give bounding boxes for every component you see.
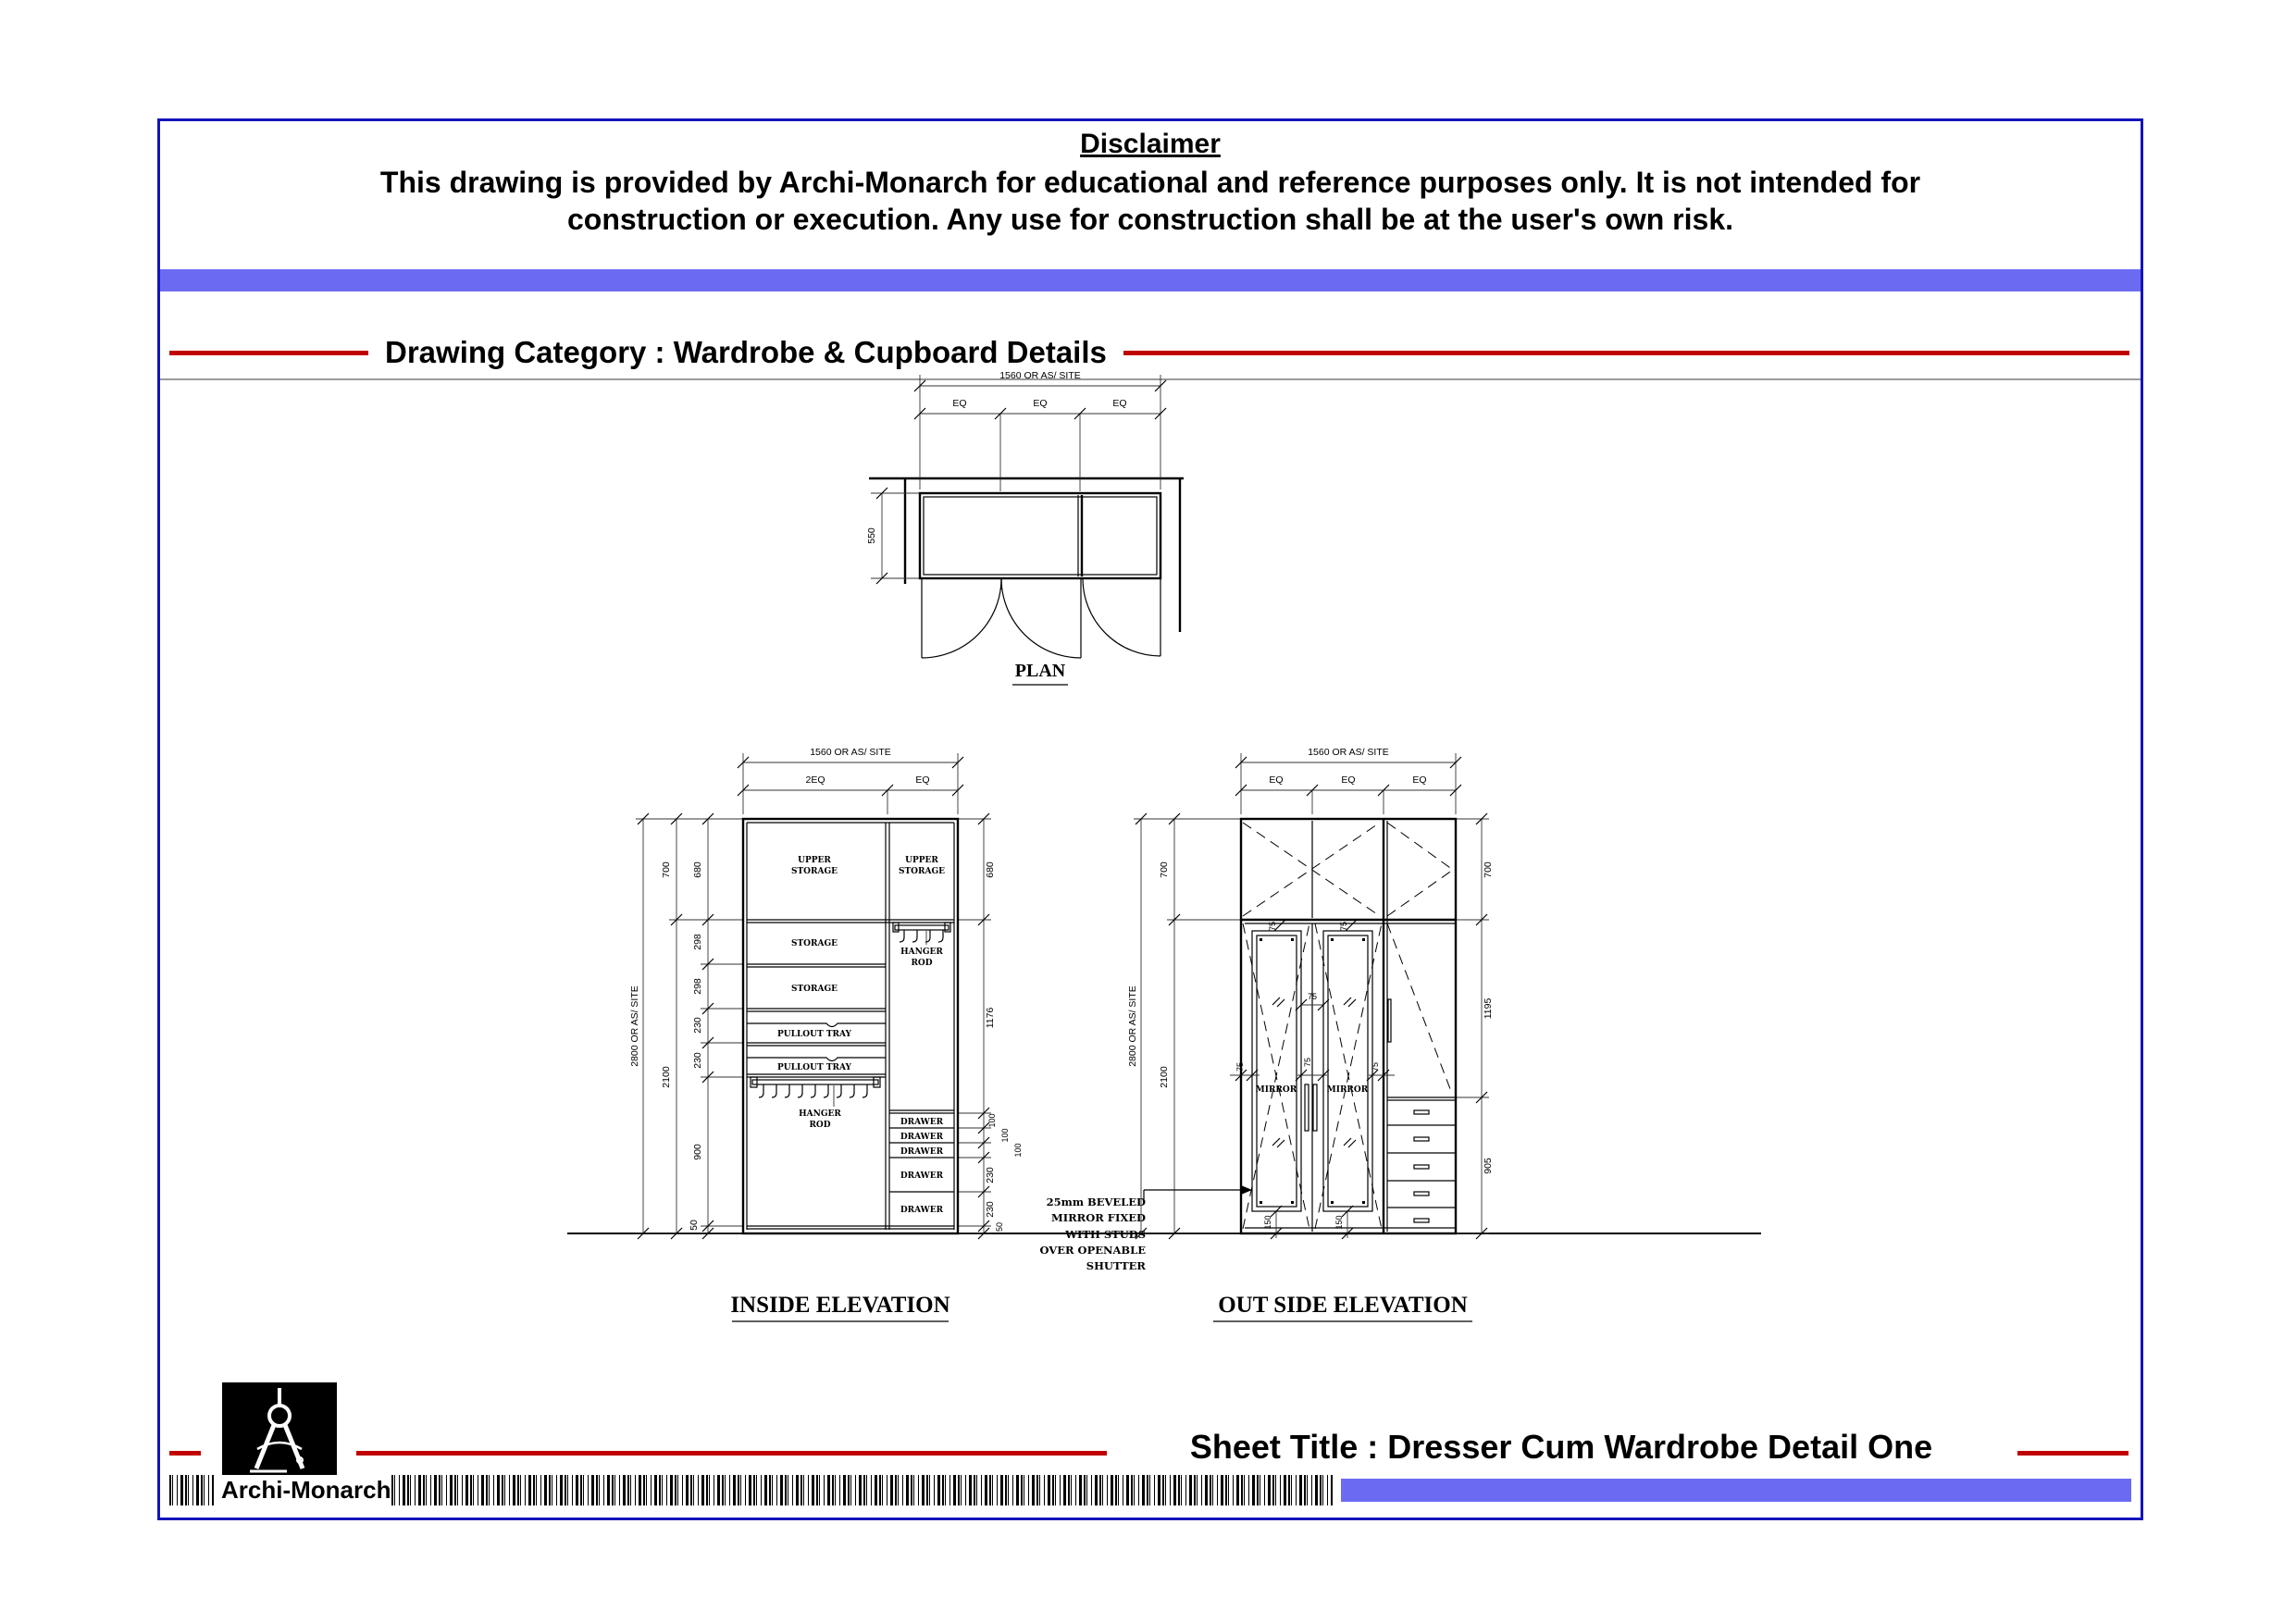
- ie-dim-100b: 100: [1000, 1128, 1010, 1142]
- hanger-hooks-left: [759, 1084, 867, 1097]
- ie-dim-eq: EQ: [915, 774, 929, 786]
- oe-mirror-label-1: MIRROR: [1256, 1085, 1297, 1095]
- footer-rule-right: [2017, 1451, 2128, 1456]
- oe-dim-eq2: EQ: [1341, 774, 1355, 786]
- ie-dim-2100: 2100: [661, 1066, 672, 1088]
- ie-drawer-3: DRAWER: [900, 1147, 944, 1157]
- ie-dim-230c: 230: [985, 1167, 996, 1183]
- ie-storage-2: STORAGE: [791, 985, 838, 994]
- footer-rule-left: [356, 1451, 1107, 1456]
- oe-dim-height: 2800 OR AS/ SITE: [1127, 985, 1138, 1067]
- ie-hanger-rod-left-line2: ROD: [809, 1121, 830, 1130]
- ie-dim-230b: 230: [692, 1052, 703, 1069]
- accent-bar-bottom: [1341, 1479, 2131, 1502]
- plan-dim-width: 1560 OR AS/ SITE: [999, 370, 1081, 381]
- plan-dim-depth: 550: [866, 527, 877, 544]
- archi-monarch-logo: [222, 1382, 337, 1475]
- ie-pullout-tray-2: PULLOUT TRAY: [777, 1063, 852, 1072]
- oe-dim-700-right: 700: [1483, 861, 1494, 878]
- disclaimer-title: Disclaimer: [160, 129, 2141, 160]
- ie-dim-height: 2800 OR AS/ SITE: [629, 985, 640, 1067]
- mirror-note-line1: 25mm BEVELED: [1047, 1196, 1146, 1208]
- mirror-note-line4: OVER OPENABLE: [1039, 1244, 1146, 1257]
- ie-drawer-4: DRAWER: [900, 1171, 944, 1181]
- plan-dim-eq2: EQ: [1033, 398, 1047, 409]
- category-rule-right: [1123, 351, 2129, 355]
- ie-dim-width: 1560 OR AS/ SITE: [810, 747, 891, 758]
- plan-dim-eq3: EQ: [1112, 398, 1126, 409]
- brand-name: Archi-Monarch: [221, 1475, 391, 1505]
- ie-storage-1: STORAGE: [791, 939, 838, 948]
- footer-rule-dash: [169, 1451, 201, 1456]
- ie-dim-700: 700: [661, 861, 672, 878]
- accent-bar-top: [160, 269, 2141, 291]
- drawing-sheet: Disclaimer This drawing is provided by A…: [157, 118, 2143, 1520]
- sheet-title: Sheet Title : Dresser Cum Wardrobe Detai…: [1112, 1428, 2010, 1467]
- drawer-handles: [1414, 1110, 1429, 1222]
- plan-title: PLAN: [1015, 661, 1066, 681]
- ie-dim-50-right: 50: [995, 1222, 1004, 1232]
- mirror-note-line5: SHUTTER: [1086, 1259, 1146, 1272]
- ie-upper-storage-left-1: UPPER: [798, 856, 831, 865]
- oe-dim-eq1: EQ: [1269, 774, 1283, 786]
- disclaimer-line-1: This drawing is provided by Archi-Monarc…: [160, 166, 2141, 200]
- oe-dim-2100: 2100: [1159, 1066, 1170, 1088]
- oe-dim-75-gap: 75: [1308, 992, 1317, 1001]
- category-rule-left: [169, 351, 368, 355]
- plan-drawing: 1560 OR AS/ SITE EQ EQ EQ 550 PLAN: [823, 354, 1258, 706]
- ie-dim-100a: 100: [987, 1113, 997, 1127]
- ie-hanger-rod-right-line1: HANGER: [900, 948, 943, 957]
- hanger-hooks-right: [900, 930, 943, 942]
- ie-dim-100c: 100: [1013, 1143, 1023, 1157]
- oe-dim-75-top1: 75: [1268, 922, 1277, 931]
- disclaimer-line-2: construction or execution. Any use for c…: [160, 203, 2141, 237]
- ie-dim-50-left: 50: [689, 1220, 700, 1231]
- outside-elevation-title: OUT SIDE ELEVATION: [1218, 1293, 1468, 1318]
- ie-dim-1176: 1176: [985, 1008, 996, 1029]
- ie-hanger-rod-left-line1: HANGER: [799, 1109, 841, 1119]
- ie-drawer-1: DRAWER: [900, 1118, 944, 1127]
- ie-dim-298a: 298: [692, 934, 703, 950]
- barcode-left-icon: [169, 1475, 214, 1505]
- barcode-main-icon: [391, 1475, 1333, 1505]
- mirror-note-line2: MIRROR FIXED: [1051, 1211, 1146, 1224]
- ie-drawer-2: DRAWER: [900, 1133, 944, 1142]
- oe-dim-1195: 1195: [1483, 998, 1494, 1020]
- ie-dim-680-right: 680: [985, 861, 996, 878]
- ie-upper-storage-right-1: UPPER: [905, 856, 938, 865]
- ie-upper-storage-right-2: STORAGE: [899, 867, 945, 876]
- oe-dim-eq3: EQ: [1412, 774, 1426, 786]
- mirror-glass-marks: [1272, 997, 1356, 1147]
- oe-dim-150-2: 150: [1334, 1215, 1344, 1229]
- ie-dim-900: 900: [692, 1144, 703, 1160]
- ie-dim-680-left: 680: [692, 861, 703, 878]
- oe-dim-75-side3: 75: [1371, 1062, 1380, 1072]
- ie-pullout-tray-1: PULLOUT TRAY: [777, 1030, 852, 1039]
- ie-upper-storage-left-2: STORAGE: [791, 867, 838, 876]
- ie-hanger-rod-right-line2: ROD: [911, 959, 932, 968]
- inside-elevation-title: INSIDE ELEVATION: [730, 1293, 949, 1318]
- inside-elevation-drawing: 1560 OR AS/ SITE 2EQ EQ 2800 OR AS/ SITE…: [595, 731, 1086, 1360]
- oe-dim-75-side2: 75: [1303, 1058, 1312, 1067]
- oe-dim-700-left: 700: [1159, 861, 1170, 878]
- ie-drawer-5: DRAWER: [900, 1206, 944, 1215]
- oe-dim-150-1: 150: [1263, 1215, 1272, 1229]
- plan-dim-eq1: EQ: [952, 398, 966, 409]
- ie-dim-298b: 298: [692, 978, 703, 995]
- oe-dim-905: 905: [1483, 1158, 1494, 1174]
- oe-dim-75-side1: 75: [1235, 1062, 1245, 1072]
- screenshot-stage: Disclaimer This drawing is provided by A…: [0, 0, 2296, 1623]
- mirror-note: 25mm BEVELED MIRROR FIXED WITH STUDS OVE…: [1025, 1195, 1146, 1274]
- oe-dim-width: 1560 OR AS/ SITE: [1308, 747, 1389, 758]
- oe-mirror-label-2: MIRROR: [1327, 1085, 1369, 1095]
- ie-dim-230d: 230: [985, 1201, 996, 1218]
- outside-elevation-drawing: 1560 OR AS/ SITE EQ EQ EQ 2800 OR AS/ SI…: [1093, 731, 1583, 1360]
- oe-dim-75-top2: 75: [1339, 922, 1348, 931]
- mirror-note-line3: WITH STUDS: [1065, 1228, 1146, 1241]
- ie-dim-230a: 230: [692, 1017, 703, 1034]
- ie-dim-2eq: 2EQ: [805, 774, 825, 786]
